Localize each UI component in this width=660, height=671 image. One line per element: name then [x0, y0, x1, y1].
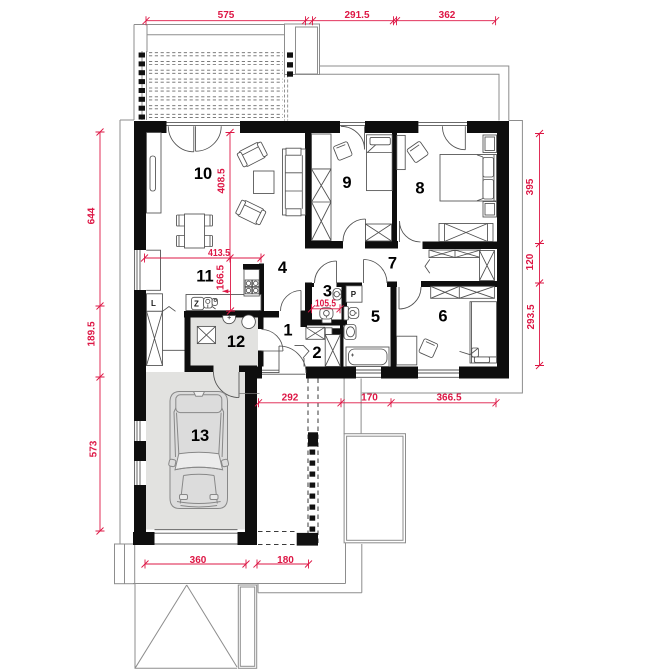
svg-text:8: 8 [415, 180, 424, 198]
svg-text:5: 5 [371, 308, 380, 326]
svg-text:413.5: 413.5 [208, 248, 230, 259]
svg-text:9: 9 [342, 174, 351, 192]
svg-text:2: 2 [312, 344, 321, 362]
svg-text:360: 360 [190, 555, 207, 566]
svg-text:7: 7 [388, 255, 397, 273]
svg-text:180: 180 [277, 555, 294, 566]
svg-text:10: 10 [194, 165, 212, 183]
svg-text:11: 11 [196, 268, 213, 286]
svg-text:13: 13 [191, 427, 209, 445]
svg-text:166.5: 166.5 [216, 265, 227, 290]
svg-text:P: P [351, 290, 357, 299]
svg-text:573: 573 [89, 440, 100, 457]
svg-text:644: 644 [87, 207, 98, 224]
svg-text:575: 575 [218, 10, 235, 21]
svg-text:291.5: 291.5 [344, 10, 369, 21]
svg-text:408.5: 408.5 [217, 168, 228, 193]
svg-text:362: 362 [439, 10, 456, 21]
svg-text:6: 6 [438, 308, 447, 326]
svg-text:3: 3 [323, 283, 332, 301]
svg-text:293.5: 293.5 [526, 304, 537, 329]
svg-text:395: 395 [525, 178, 536, 195]
svg-text:4: 4 [278, 259, 288, 277]
svg-text:Z: Z [194, 300, 199, 309]
svg-text:L: L [151, 299, 156, 308]
svg-text:170: 170 [361, 393, 378, 404]
svg-text:120: 120 [525, 253, 536, 270]
svg-text:366.5: 366.5 [436, 393, 461, 404]
svg-text:1: 1 [283, 322, 292, 340]
svg-text:12: 12 [227, 333, 245, 351]
svg-text:189.5: 189.5 [87, 321, 98, 346]
svg-text:292: 292 [282, 393, 299, 404]
